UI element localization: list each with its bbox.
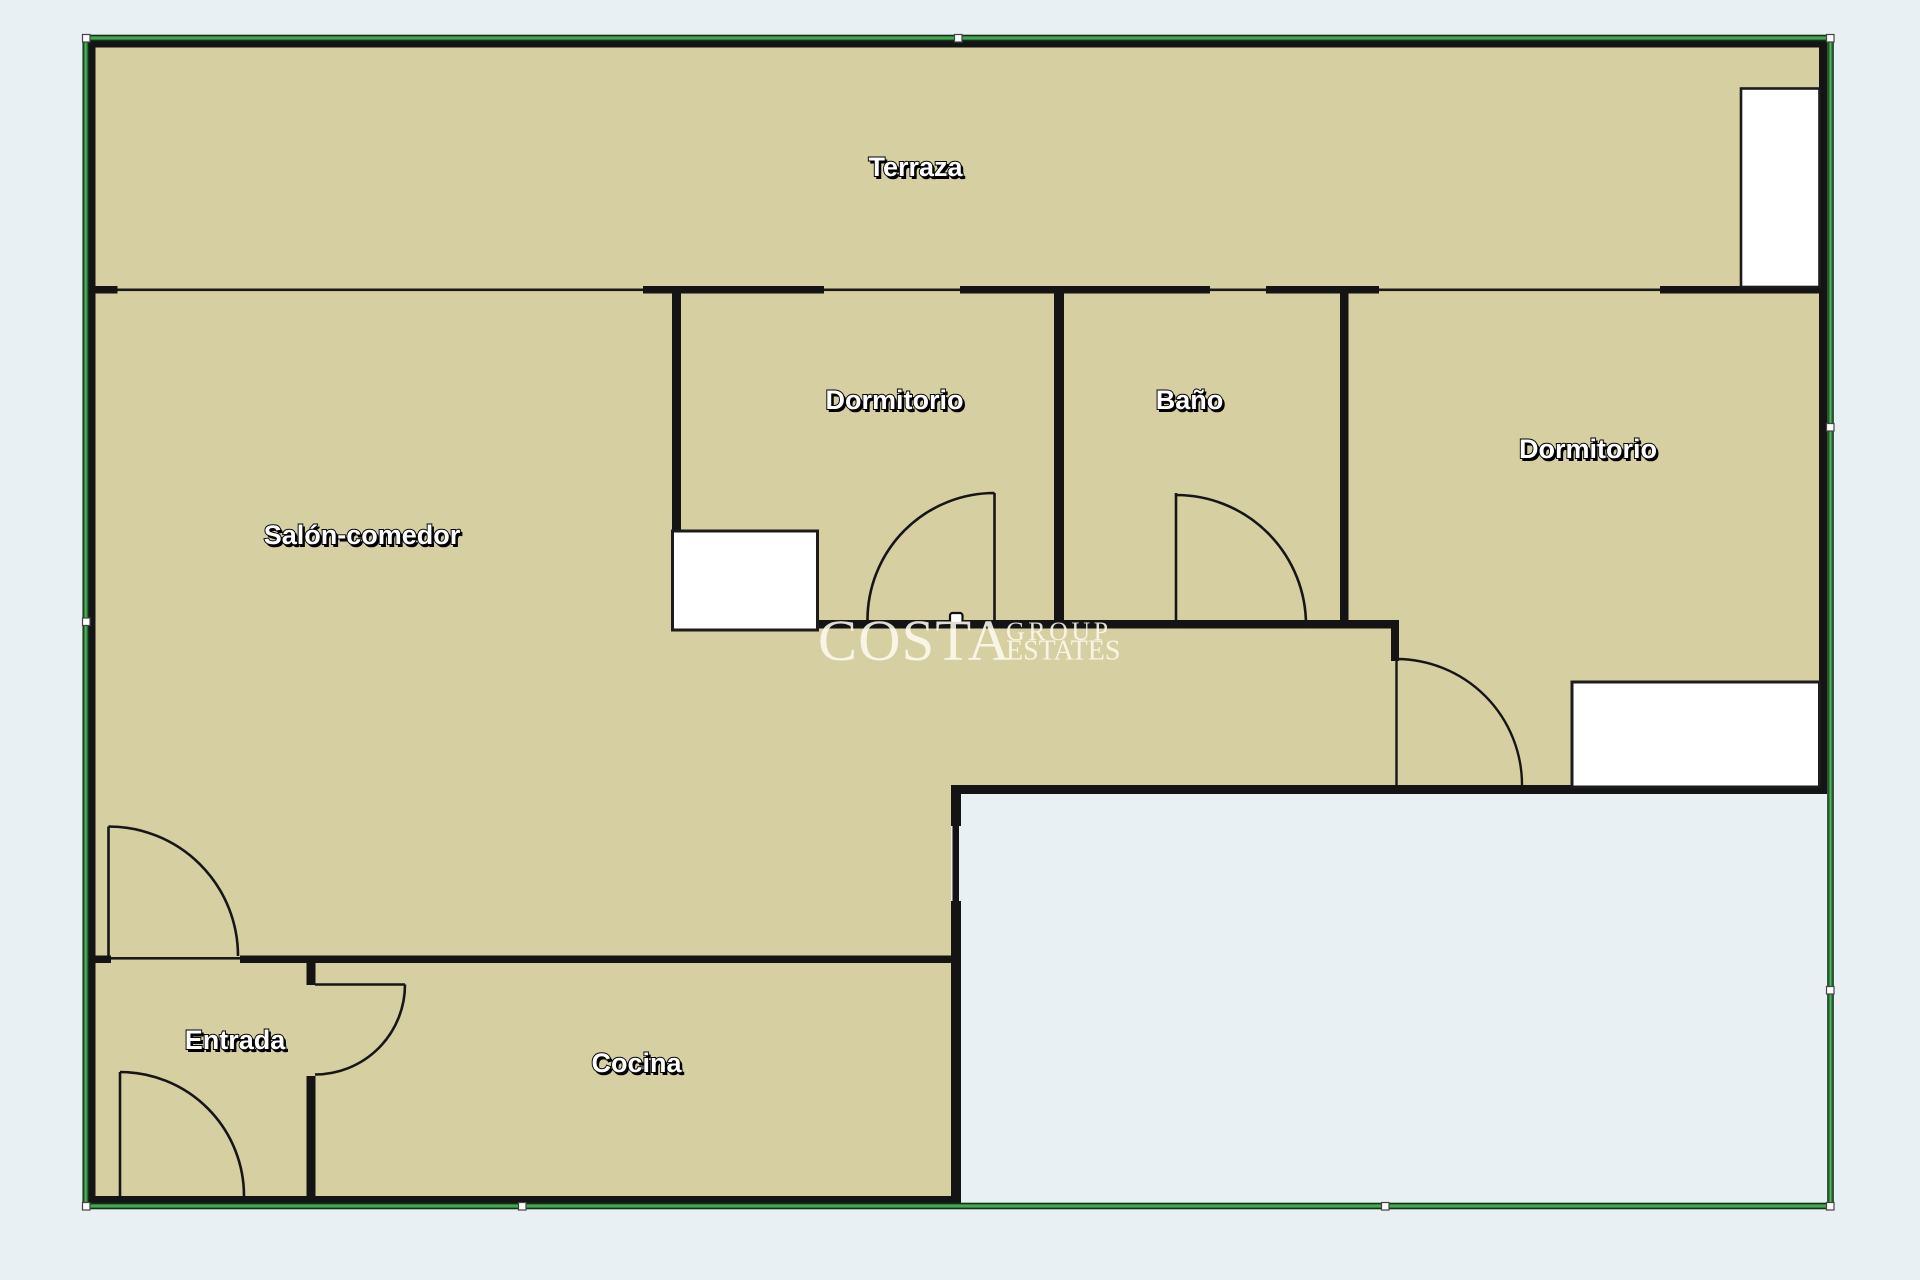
svg-text:Cocina: Cocina: [591, 1048, 682, 1078]
svg-text:Dormitorio: Dormitorio: [1519, 434, 1657, 464]
svg-text:Baño: Baño: [1156, 385, 1224, 415]
svg-text:COSTA: COSTA: [818, 608, 1011, 673]
svg-text:Salón-comedor: Salón-comedor: [264, 520, 461, 550]
svg-text:Terraza: Terraza: [868, 152, 963, 182]
svg-text:Entrada: Entrada: [185, 1025, 287, 1055]
svg-text:Dormitorio: Dormitorio: [826, 385, 964, 415]
svg-text:ESTATES: ESTATES: [1006, 636, 1120, 667]
